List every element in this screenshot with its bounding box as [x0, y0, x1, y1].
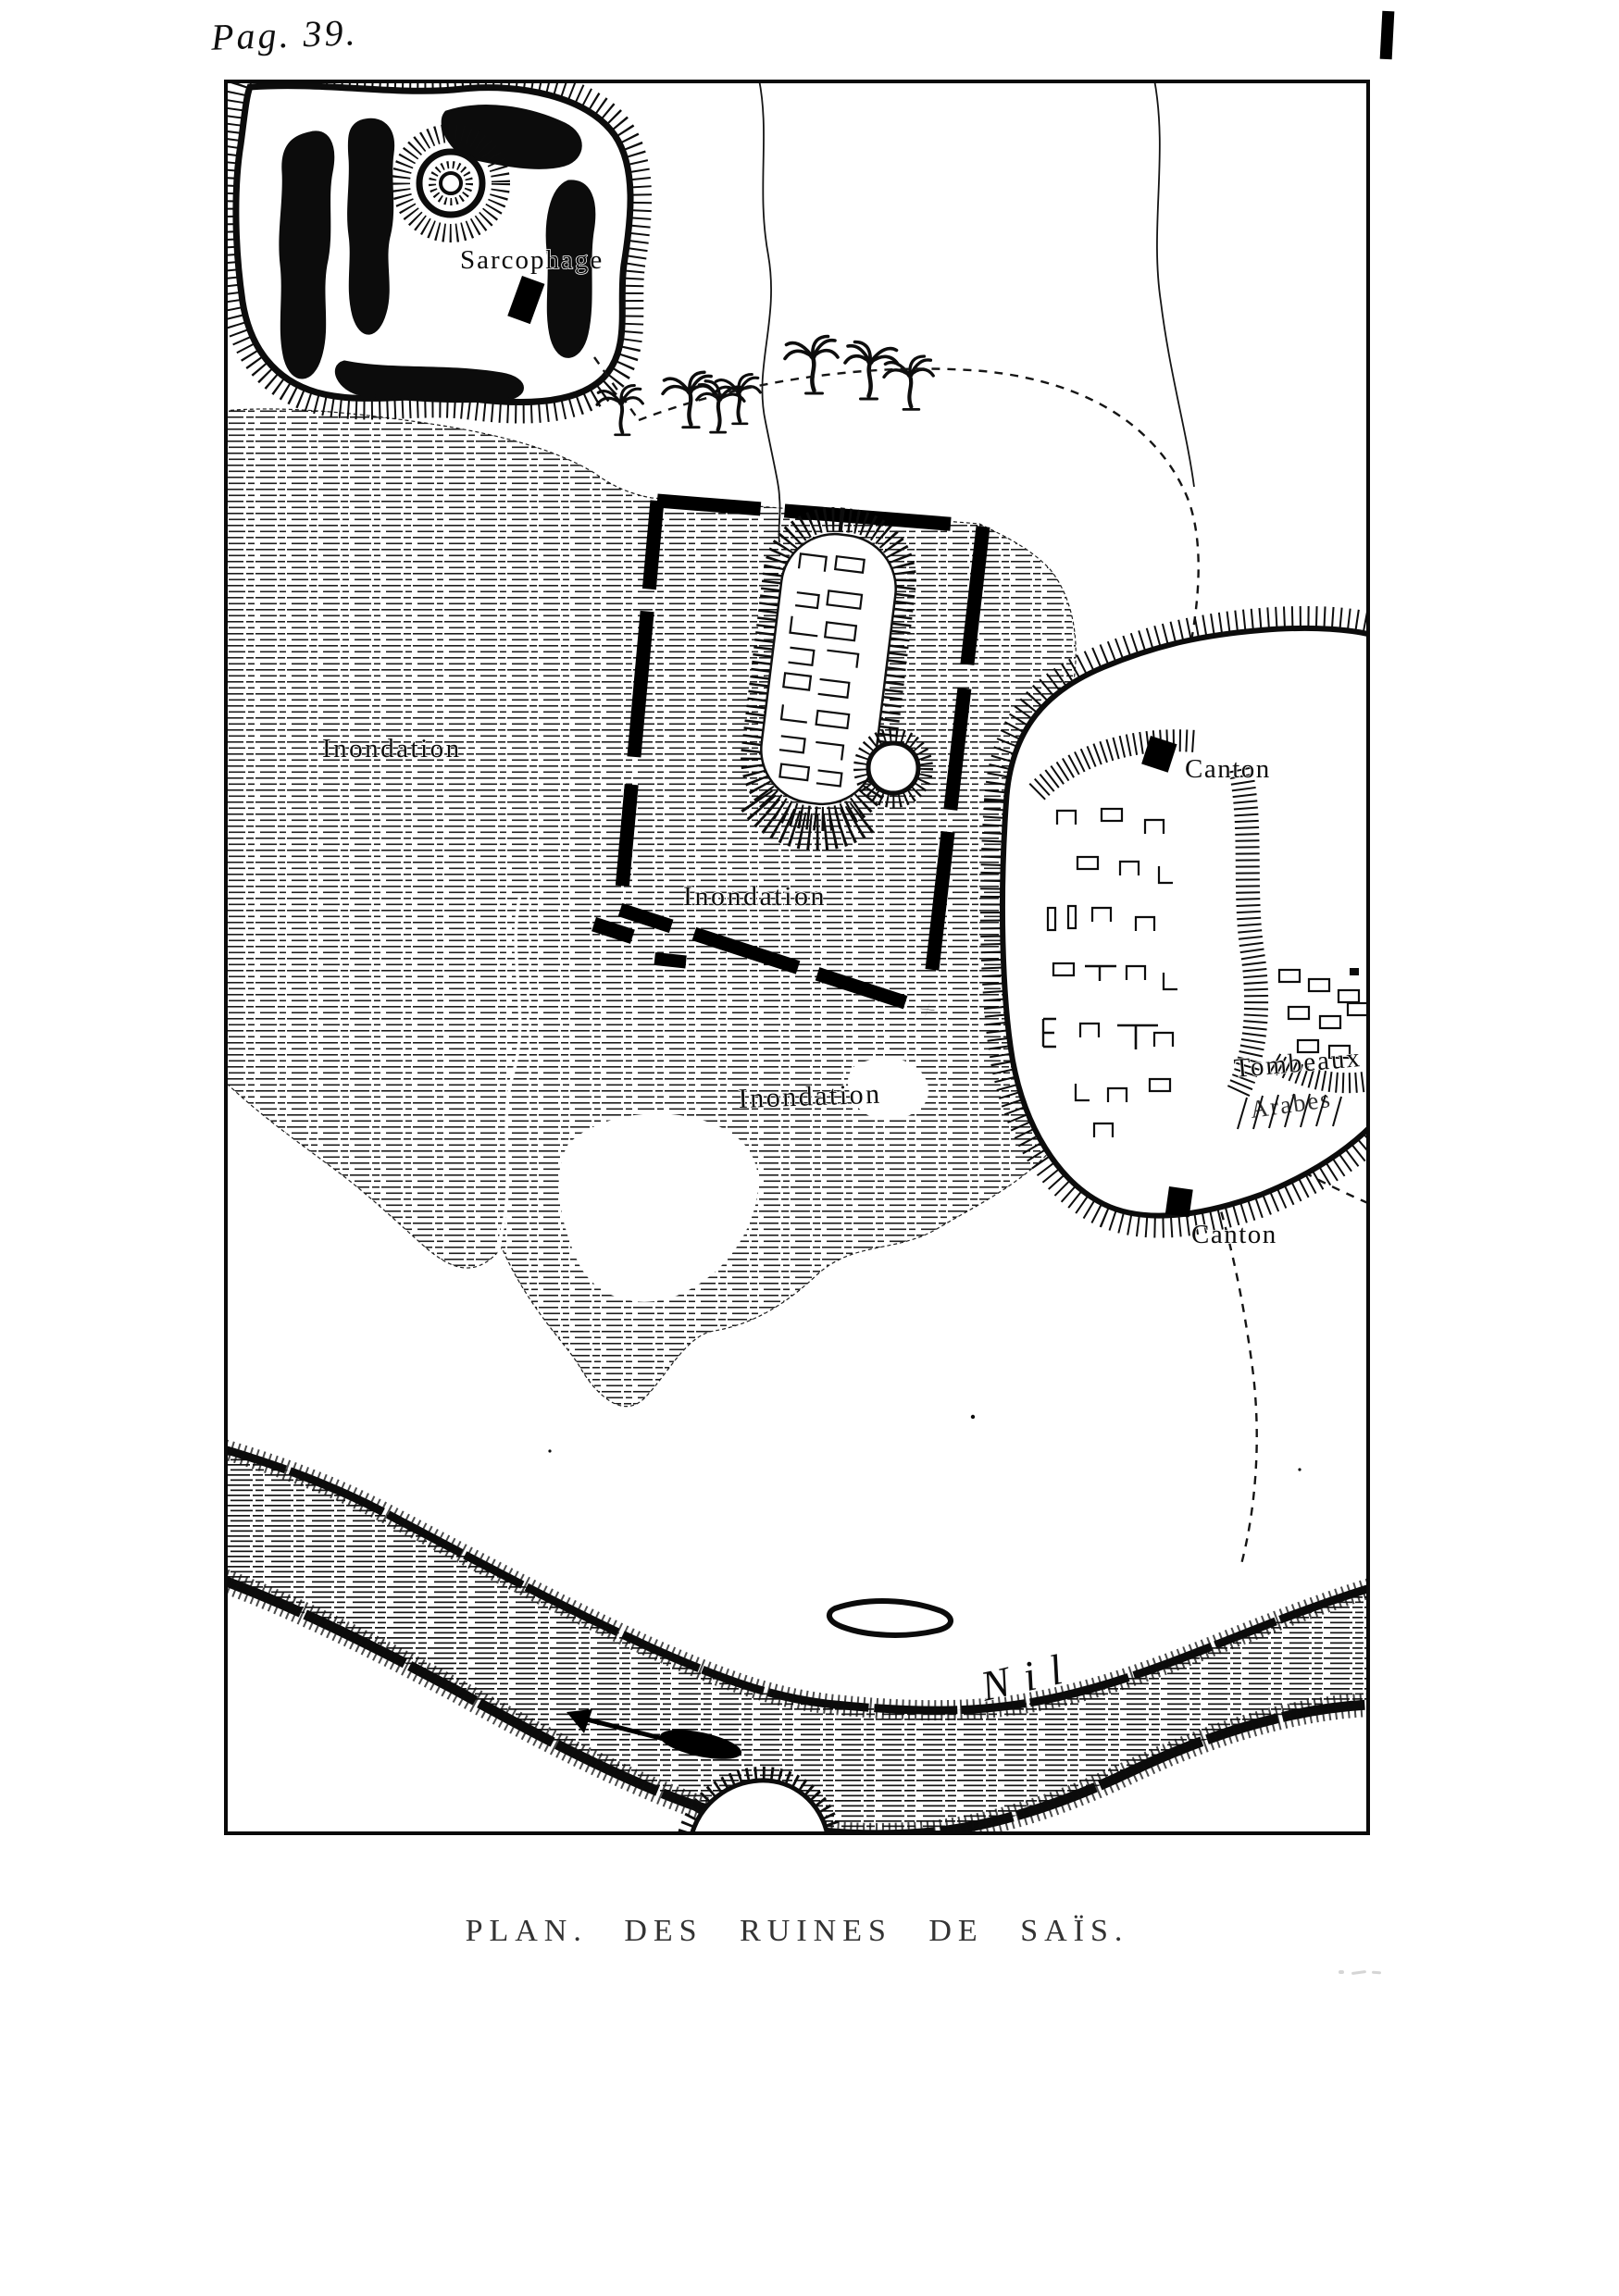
- tombs-mound: [1003, 628, 1370, 1216]
- label-canton-north: Canton: [1185, 754, 1271, 784]
- label-inondation-west: Inondation: [322, 734, 462, 763]
- sandbank: [829, 1601, 951, 1635]
- page-number: Pag. 39.: [210, 10, 358, 59]
- label-sarcophage: Sarcophage: [460, 245, 604, 275]
- palm-tree: [597, 386, 642, 435]
- binding-mark: [1380, 11, 1395, 60]
- stream-line: [1154, 80, 1194, 487]
- sand-dots: [548, 1415, 1301, 1471]
- plate-smudge: [1339, 1962, 1403, 1980]
- map-canvas: Sarcophage Inondation Inondation Inondat…: [224, 80, 1370, 1835]
- stream-line: [759, 80, 780, 542]
- label-canton-south: Canton: [1191, 1220, 1277, 1249]
- plate-caption: PLAN. DES RUINES DE SAÏS.: [224, 1914, 1370, 1949]
- label-inondation-center: Inondation: [683, 881, 827, 912]
- palm-tree: [884, 356, 933, 409]
- palm-tree: [785, 337, 838, 394]
- engraved-plate: Pag. 39.: [0, 0, 1619, 2296]
- label-inondation-south: Inondation: [738, 1079, 882, 1114]
- canton-south-marker: [1165, 1186, 1193, 1217]
